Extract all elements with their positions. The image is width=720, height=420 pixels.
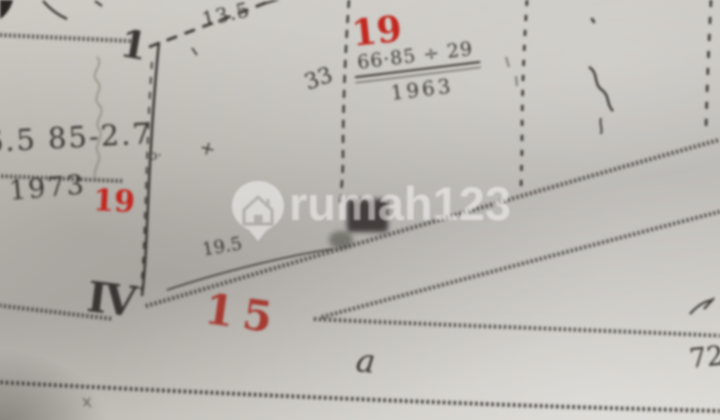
small-tick [192, 48, 197, 55]
road-line-lower [314, 319, 720, 336]
survey-map-photo: 1 13.5 33 19 66·85 ÷ 29 1963 6.5 85-2.7 … [0, 0, 720, 420]
dimension-line-thin [167, 249, 333, 290]
sketch-layer: 1 13.5 33 19 66·85 ÷ 29 1963 6.5 85-2.7 … [0, 0, 720, 420]
parcel-divider-dashed-far-right [706, 0, 711, 130]
dark-stamp-square [347, 199, 388, 232]
parcel-divider-dashed-right [521, 0, 527, 192]
road-letter: a [355, 344, 377, 378]
check-mark [690, 298, 714, 314]
parcel-divider-dashed-mid [340, 0, 349, 203]
parcel-number-bottom-red: 15 [202, 288, 284, 340]
north-boundary-stray-dash [263, 0, 290, 4]
parcel-number-top-red: 19 [350, 11, 404, 52]
bottom-x-mark [83, 398, 91, 407]
point-label-bottom: IV [85, 276, 136, 323]
note-right-72: 72 [688, 342, 720, 372]
parcel-number-left-red: 19 [92, 186, 135, 218]
note-o-mark: o· [149, 149, 162, 163]
road-line-upper [146, 138, 720, 306]
year-left: 1973 [8, 171, 87, 205]
note-left: 6.5 85-2.7 [0, 119, 153, 157]
corner-dark-blob [0, 0, 13, 19]
ink-squiggle [589, 67, 613, 111]
top-edge-tick [95, 1, 102, 6]
corner-smudge-arc [43, 1, 67, 19]
top-left-hatch-line [0, 35, 131, 41]
dark-stamp-blob [329, 231, 353, 249]
road-line-bottom [0, 382, 720, 411]
small-dot [592, 19, 594, 22]
dash-start-ticks [506, 57, 517, 86]
small-mark-right [600, 118, 601, 134]
